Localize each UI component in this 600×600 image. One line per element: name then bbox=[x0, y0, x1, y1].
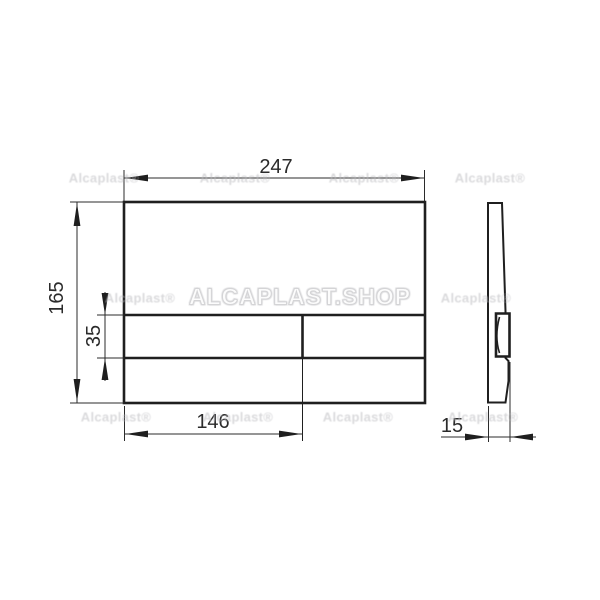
arrowhead-inward-left bbox=[465, 434, 488, 441]
arrowhead-top bbox=[74, 203, 81, 226]
dim-label-overall-height: 165 bbox=[46, 281, 68, 314]
side-profile-outline bbox=[488, 203, 509, 403]
side-view bbox=[488, 203, 510, 403]
arrowhead-inward-right bbox=[511, 434, 534, 441]
arrowhead-left bbox=[126, 431, 149, 438]
dim-label-big-button-width: 146 bbox=[196, 411, 229, 433]
front-view bbox=[124, 202, 425, 441]
arrowhead-bottom bbox=[74, 379, 81, 402]
arrowhead-left bbox=[125, 175, 148, 182]
arrowhead-upper bbox=[102, 293, 109, 315]
arrowhead-lower bbox=[102, 358, 109, 380]
technical-drawing-canvas: 247 165 35 146 bbox=[0, 0, 600, 600]
arrowhead-right bbox=[401, 175, 424, 182]
dimension-overall-height bbox=[70, 202, 124, 403]
arrowhead-right bbox=[279, 431, 302, 438]
plate-outline bbox=[124, 202, 425, 403]
flush-plate-drawing: 247 165 35 146 bbox=[0, 0, 600, 600]
dim-label-button-row-height: 35 bbox=[83, 325, 105, 347]
dim-label-plate-depth: 15 bbox=[441, 415, 463, 437]
dim-label-overall-width: 247 bbox=[259, 156, 292, 178]
